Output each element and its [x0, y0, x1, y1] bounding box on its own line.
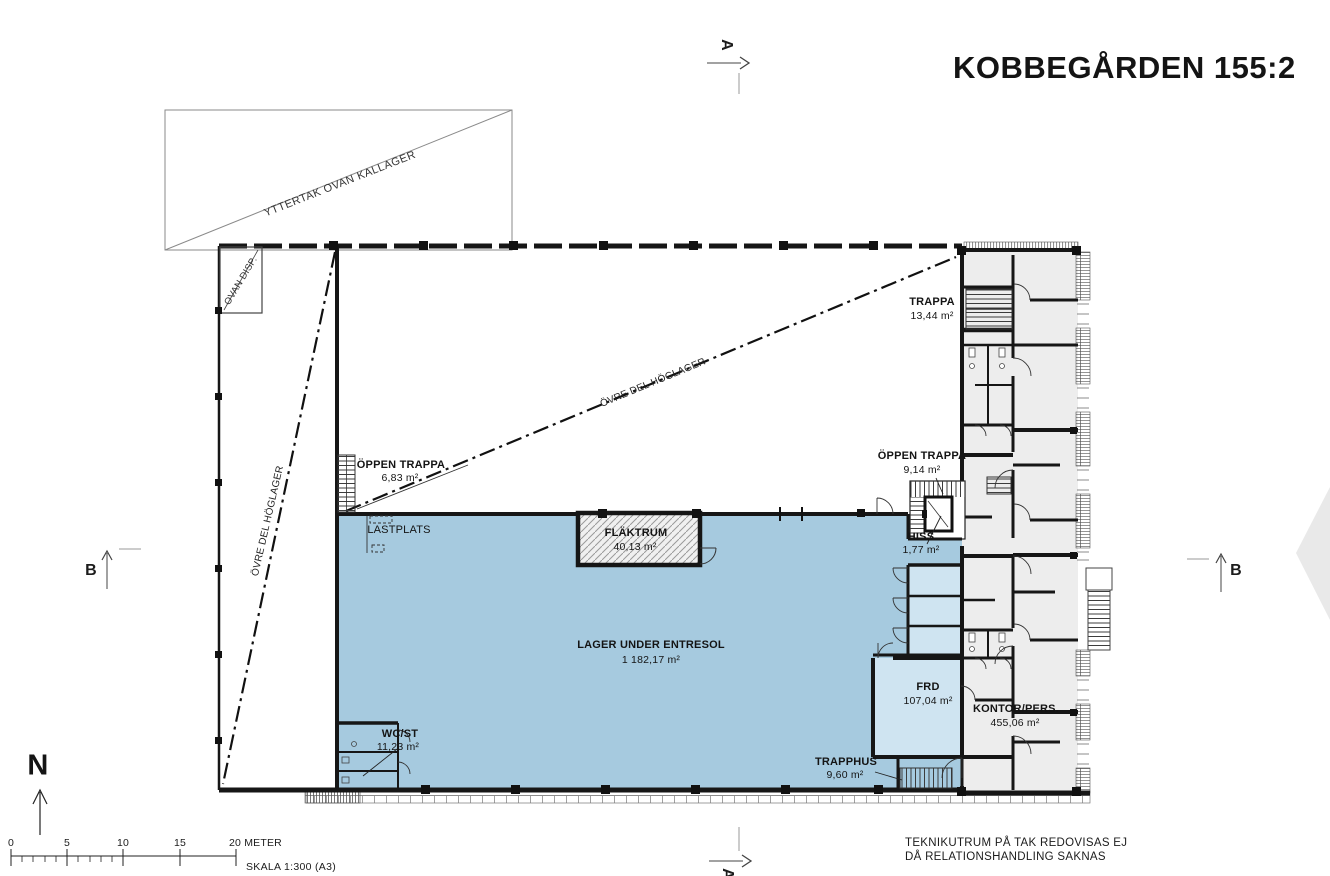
room-kontor-name: KONTOR/PERS.	[973, 703, 1059, 715]
lastplats-label: LASTPLATS	[367, 524, 430, 536]
section-marker-a-top: A	[717, 39, 735, 51]
flaktrum-room	[578, 513, 716, 565]
room-hiss-name: HISS	[908, 531, 934, 543]
room-flaktrum-area: 40,13 m²	[613, 541, 656, 553]
section-marker-a-bottom: A	[718, 868, 736, 876]
room-hiss-area: 1,77 m²	[903, 544, 940, 556]
note-line-2: DÅ RELATIONSHANDLING SAKNAS	[905, 851, 1106, 863]
room-oppen-trappa-ost-area: 9,14 m²	[904, 464, 941, 476]
room-frd-area: 107,04 m²	[903, 695, 952, 707]
room-wcst-area: 11,23 m²	[377, 741, 419, 753]
north-label: N	[27, 750, 48, 783]
note-line-1: TEKNIKUTRUM PÅ TAK REDOVISAS EJ	[905, 837, 1127, 849]
room-frd-name: FRD	[916, 681, 939, 693]
scale-tick-0: 0	[8, 837, 14, 849]
scale-bar-ruler	[11, 849, 236, 866]
section-marker-b-left: B	[85, 562, 97, 580]
north-arrow-icon	[33, 790, 47, 835]
small-rooms-fill	[908, 565, 962, 655]
room-trapphus-name: TRAPPHUS	[815, 756, 877, 768]
scale-tick-10: 10	[117, 837, 129, 849]
right-edge-shade	[1296, 487, 1330, 620]
drawing-title: KOBBEGÅRDEN 155:2	[953, 50, 1296, 86]
plan-linework	[0, 0, 1330, 876]
external-stair-east	[1086, 568, 1112, 650]
section-arrow-a-bottom-icon	[709, 827, 751, 867]
scale-tick-15: 15	[174, 837, 186, 849]
scale-label: SKALA 1:300 (A3)	[246, 861, 336, 873]
room-flaktrum-name: FLÄKTRUM	[605, 527, 668, 539]
room-trappa-name: TRAPPA	[909, 296, 955, 308]
room-oppen-trappa-ost-name: ÖPPEN TRAPPA	[878, 450, 966, 462]
room-kontor-area: 455,06 m²	[990, 717, 1039, 729]
frd-fill	[873, 658, 962, 757]
room-oppen-trappa-vast-name: ÖPPEN TRAPPA	[357, 459, 445, 471]
room-oppen-trappa-vast-area: 6,83 m²	[382, 472, 419, 484]
room-trapphus-area: 9,60 m²	[827, 769, 864, 781]
section-arrow-a-top-icon	[707, 57, 749, 94]
office-mini-stair	[987, 477, 1011, 494]
floor-plan-canvas: KOBBEGÅRDEN 155:2 YTTERTAK OVAN KALLAGER…	[0, 0, 1330, 876]
room-wcst-name: WC/ST	[382, 728, 418, 740]
room-lager-area: 1 182,17 m²	[622, 654, 680, 666]
section-arrow-b-left-icon	[102, 549, 141, 589]
room-lager-name: LAGER UNDER ENTRESOL	[577, 639, 725, 651]
scale-tick-20: 20 METER	[229, 837, 282, 849]
open-stair-west	[338, 455, 355, 512]
section-arrow-b-right-icon	[1187, 554, 1226, 592]
scale-tick-5: 5	[64, 837, 70, 849]
office-stair-trappa	[966, 289, 1012, 329]
room-trappa-area: 13,44 m²	[910, 310, 953, 322]
section-marker-b-right: B	[1230, 562, 1242, 580]
